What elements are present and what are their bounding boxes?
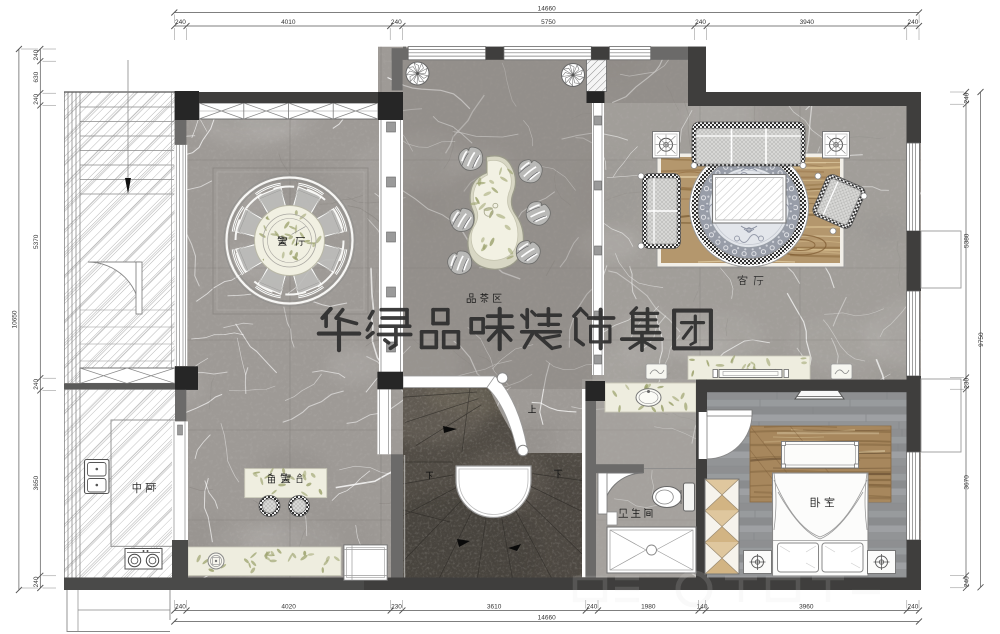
svg-text:14660: 14660 (538, 615, 556, 622)
svg-text:3940: 3940 (800, 19, 815, 26)
svg-text:240: 240 (391, 19, 402, 26)
svg-text:5750: 5750 (541, 19, 556, 26)
svg-text:240: 240 (964, 92, 971, 103)
svg-text:240: 240 (175, 19, 186, 26)
svg-text:240: 240 (33, 49, 40, 60)
svg-text:5370: 5370 (33, 234, 40, 249)
svg-text:230: 230 (391, 604, 402, 611)
svg-text:240: 240 (586, 604, 597, 611)
svg-text:240: 240 (33, 378, 40, 389)
svg-text:240: 240 (33, 93, 40, 104)
svg-text:4010: 4010 (281, 19, 296, 26)
svg-text:9750: 9750 (978, 332, 985, 347)
svg-text:4020: 4020 (281, 604, 296, 611)
svg-text:10650: 10650 (11, 310, 18, 328)
svg-text:240: 240 (907, 19, 918, 26)
svg-text:230: 230 (964, 377, 971, 388)
svg-text:3650: 3650 (33, 475, 40, 490)
svg-text:3610: 3610 (487, 604, 502, 611)
svg-text:240: 240 (964, 576, 971, 587)
svg-text:630: 630 (33, 71, 40, 82)
svg-text:14660: 14660 (538, 6, 556, 13)
svg-text:240: 240 (33, 576, 40, 587)
svg-text:240: 240 (175, 604, 186, 611)
svg-text:1980: 1980 (641, 604, 656, 611)
svg-text:240: 240 (907, 604, 918, 611)
svg-text:240: 240 (695, 19, 706, 26)
svg-text:3960: 3960 (799, 604, 814, 611)
svg-text:5380: 5380 (964, 233, 971, 248)
svg-text:3670: 3670 (964, 475, 971, 490)
